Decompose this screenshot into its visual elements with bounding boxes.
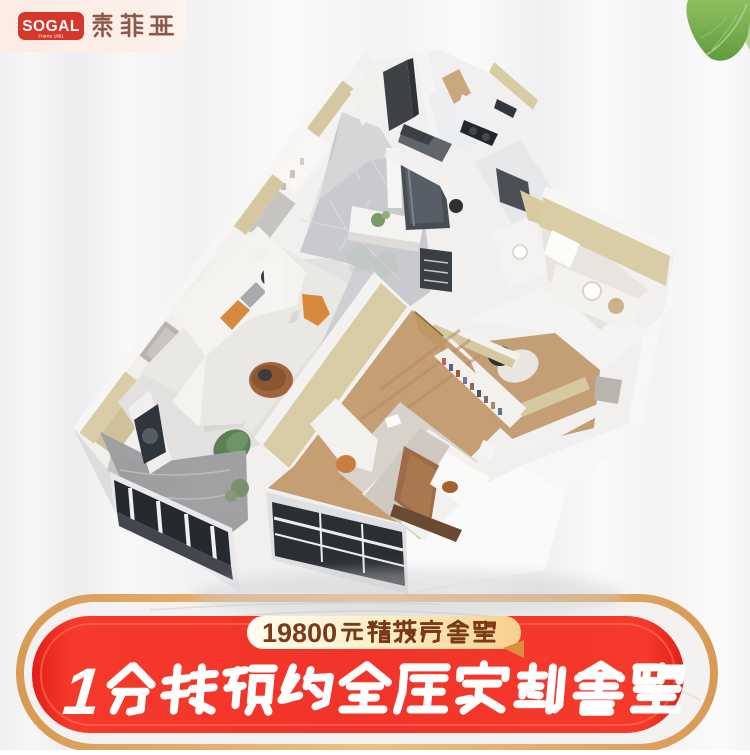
svg-text:France 1981: France 1981 [38, 34, 64, 39]
svg-text:19800: 19800 [262, 618, 337, 648]
svg-text:SOGAL: SOGAL [22, 18, 80, 35]
svg-text:1: 1 [60, 655, 103, 729]
